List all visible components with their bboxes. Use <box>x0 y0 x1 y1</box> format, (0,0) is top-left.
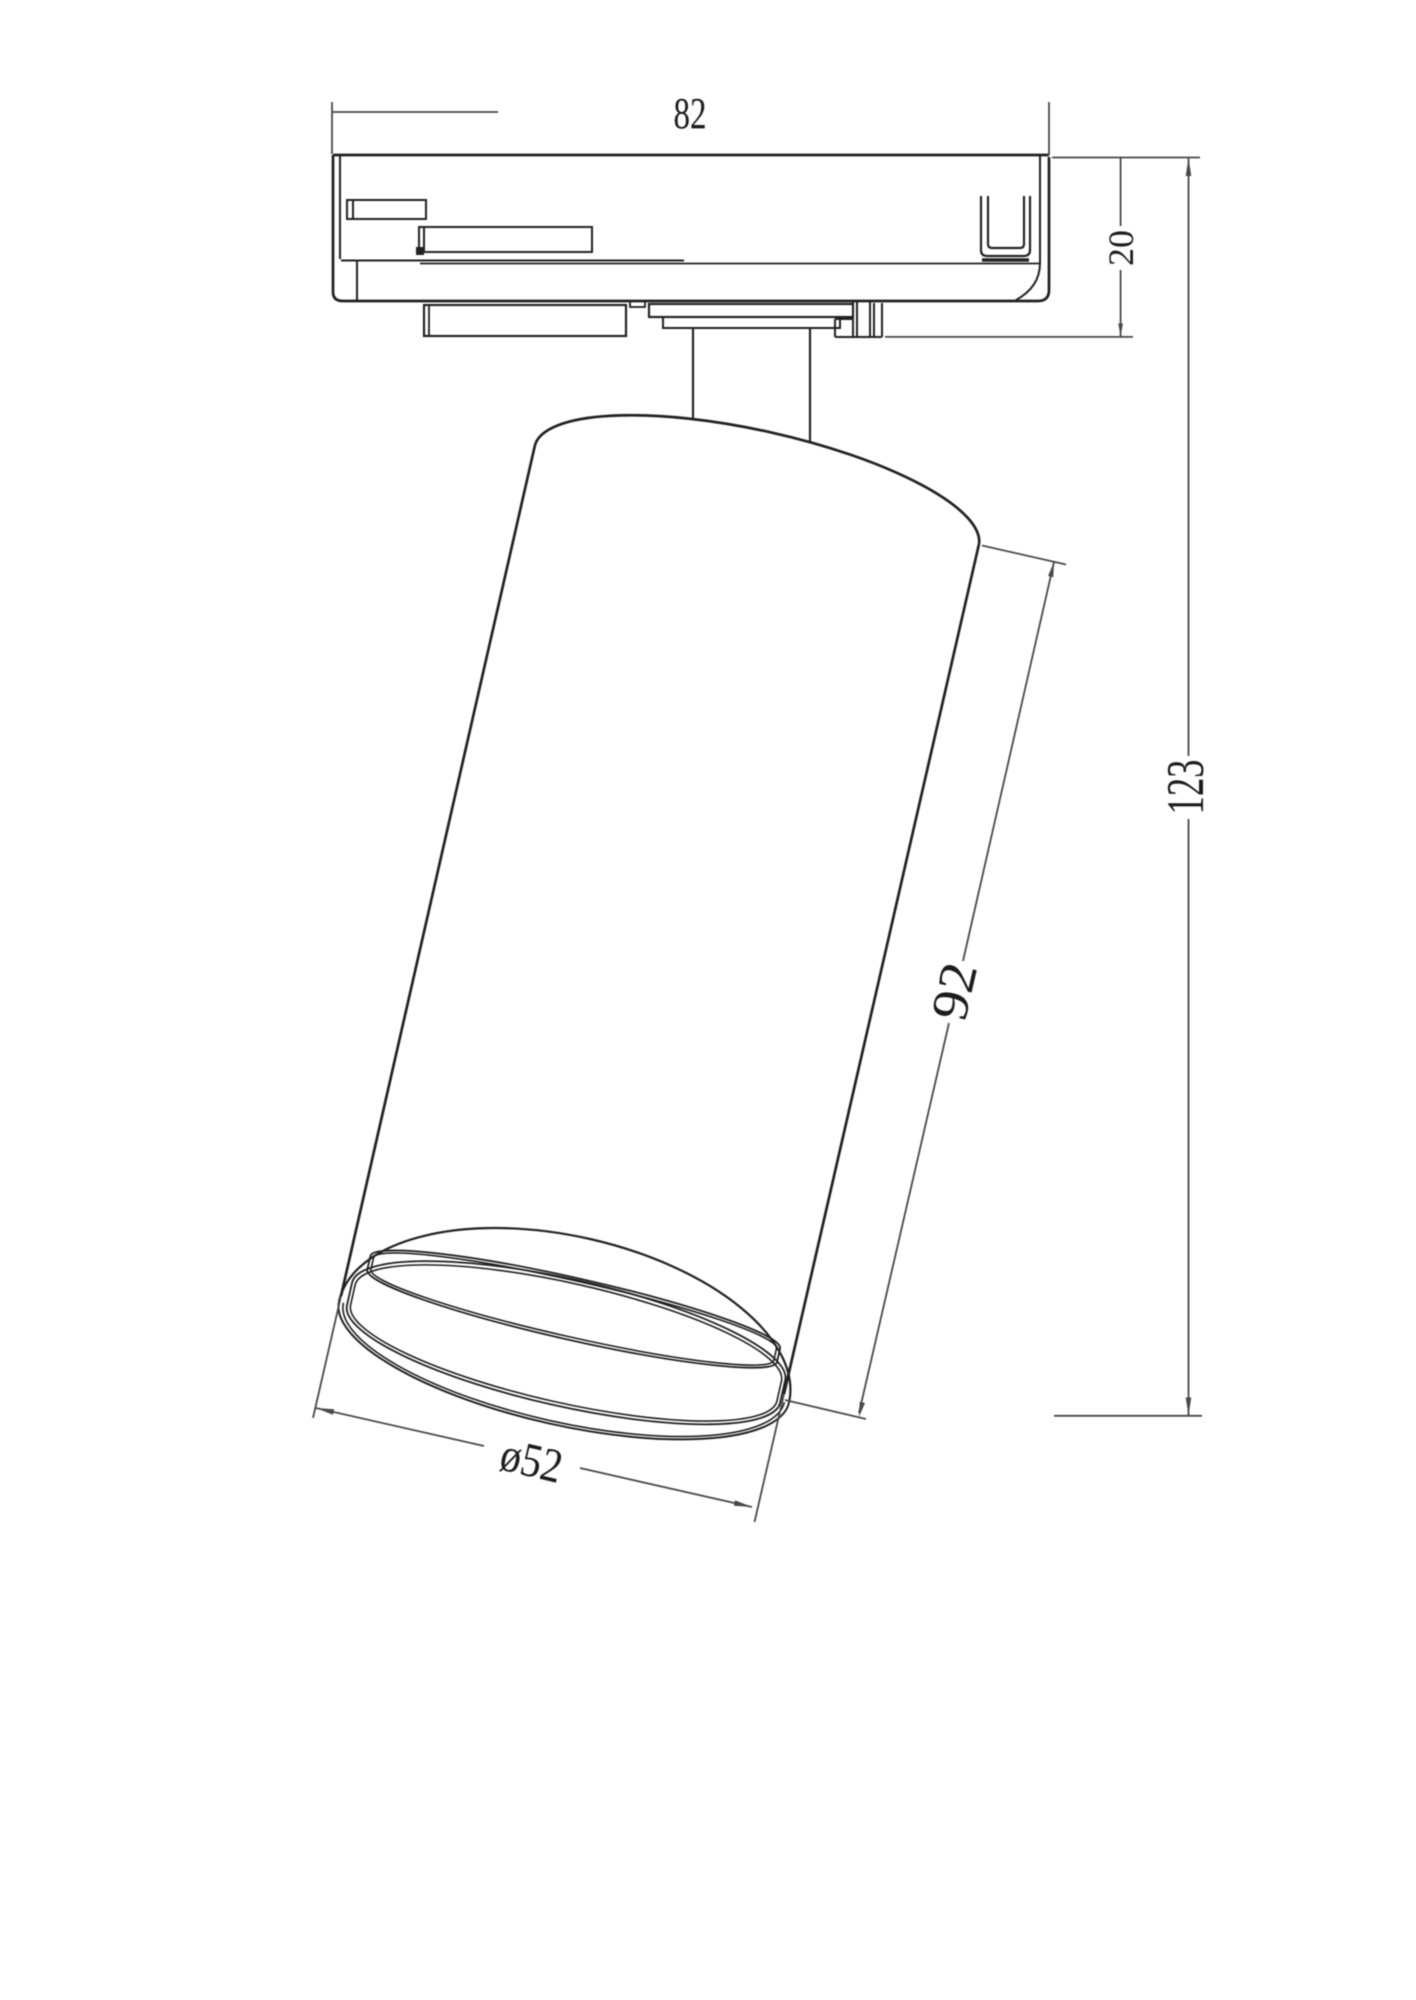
svg-text:123: 123 <box>1157 760 1215 815</box>
svg-text:ø52: ø52 <box>495 1428 567 1494</box>
svg-text:20: 20 <box>1101 230 1141 266</box>
svg-text:82: 82 <box>674 89 707 138</box>
svg-text:92: 92 <box>921 957 989 1025</box>
